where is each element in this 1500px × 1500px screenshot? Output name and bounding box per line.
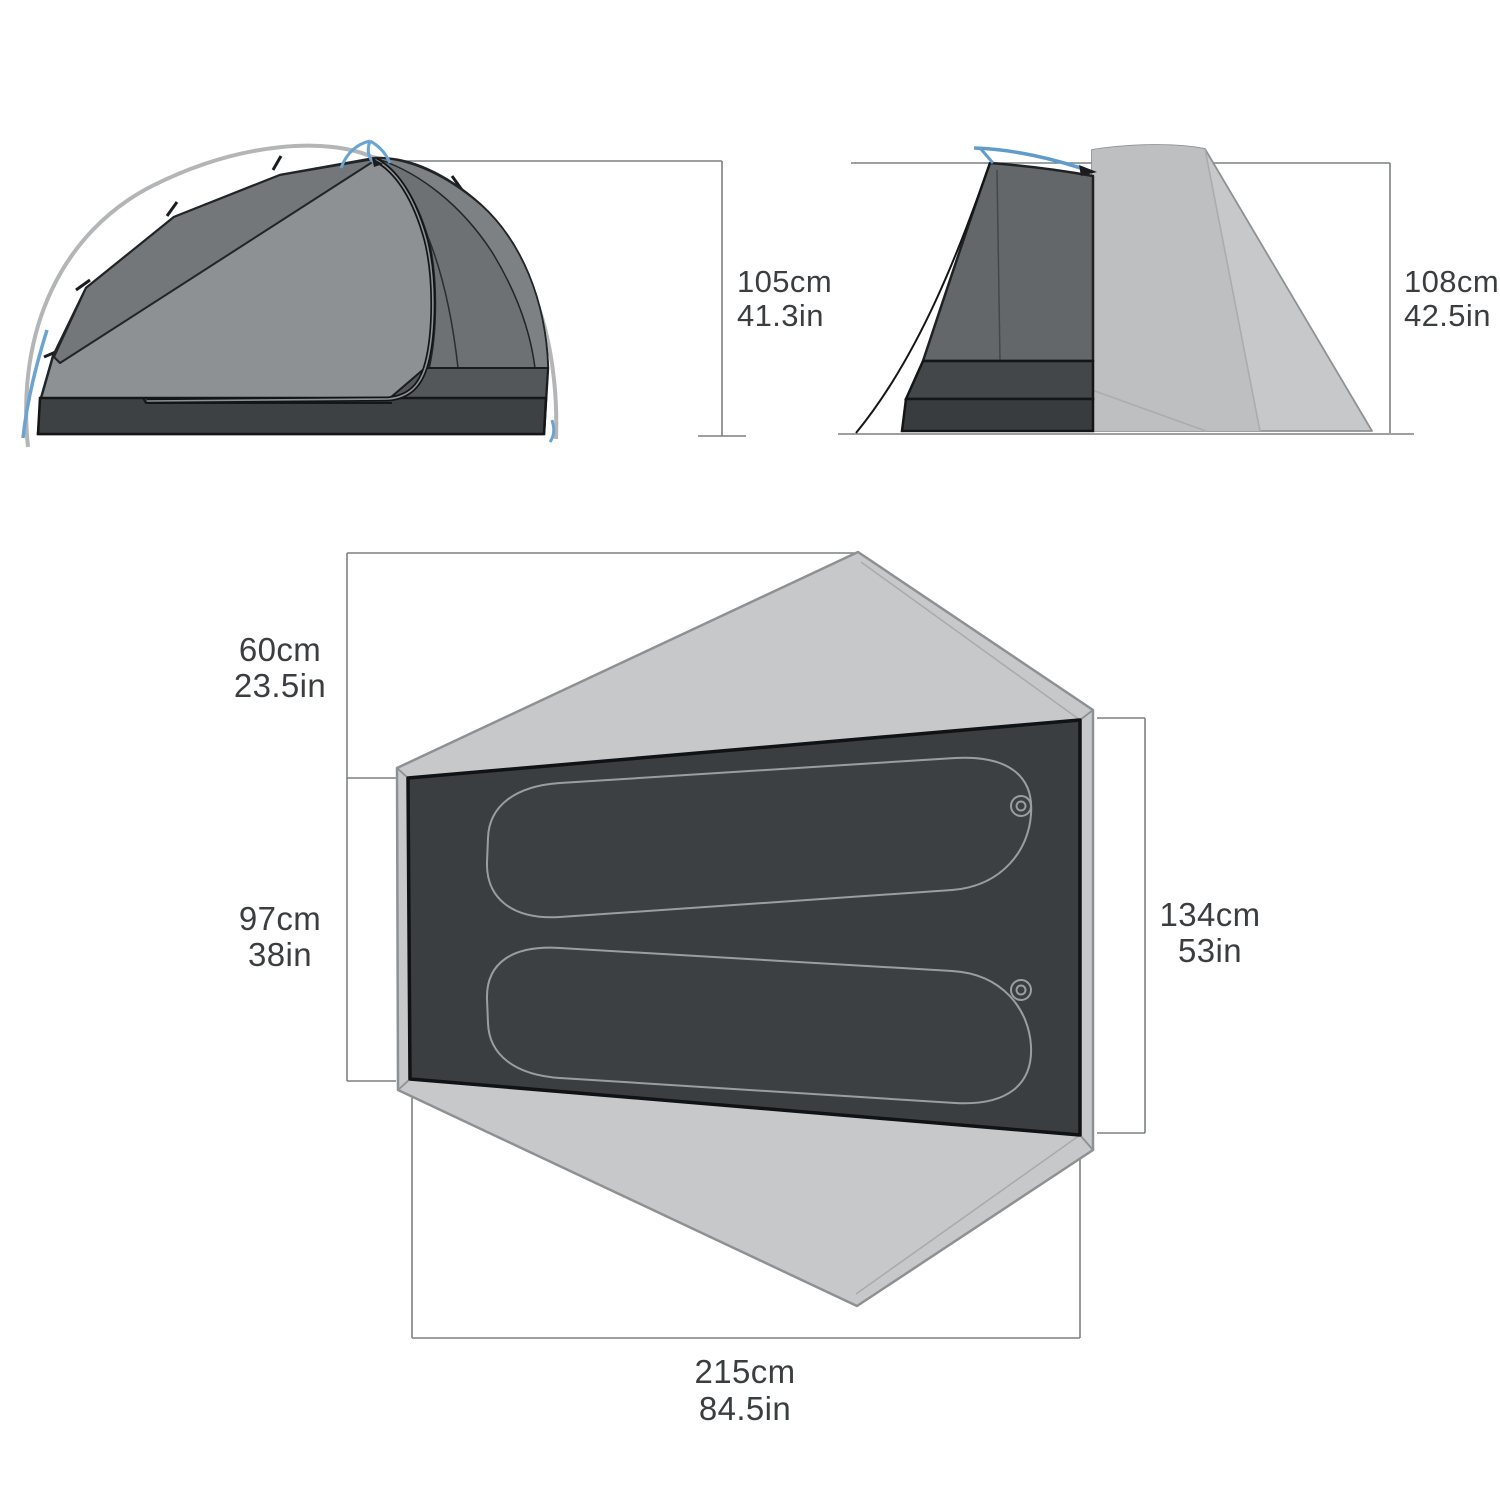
length-label-in: 84.5in xyxy=(699,1390,791,1427)
tent-dimension-diagram: 105cm 41.3in 108cm 42.5in 60cm 23.5in 97… xyxy=(0,0,1500,1500)
bathtub-band-upper xyxy=(906,361,1093,399)
side-height-label-in: 41.3in xyxy=(737,298,824,333)
front-height-label-in: 42.5in xyxy=(1404,298,1491,333)
pole-tip-blue-right xyxy=(550,420,554,442)
diagram-canvas: 105cm 41.3in 108cm 42.5in 60cm 23.5in 97… xyxy=(0,0,1500,1500)
tent-side-view xyxy=(23,141,556,447)
bathtub-band-lower xyxy=(902,399,1093,431)
inner-tent-mesh xyxy=(923,163,1093,361)
left-width-label-in: 38in xyxy=(248,936,312,973)
tent-front-view xyxy=(856,145,1372,433)
length-label-cm: 215cm xyxy=(694,1353,795,1390)
right-width-label-in: 53in xyxy=(1178,932,1242,969)
front-height-label-cm: 108cm xyxy=(1404,264,1499,299)
vestibule-label-in: 23.5in xyxy=(234,667,326,704)
left-width-label-cm: 97cm xyxy=(239,900,321,937)
right-width-label-cm: 134cm xyxy=(1159,896,1260,933)
vestibule-label-cm: 60cm xyxy=(239,631,321,668)
side-height-label-cm: 105cm xyxy=(737,264,832,299)
floor-plan xyxy=(397,552,1093,1306)
